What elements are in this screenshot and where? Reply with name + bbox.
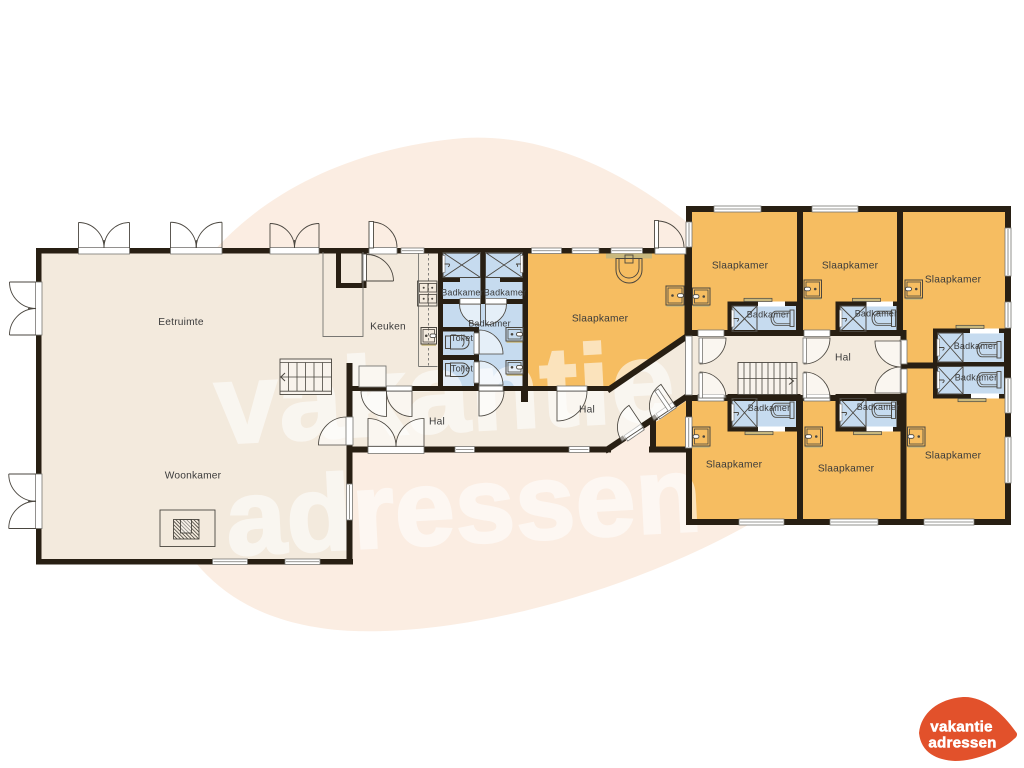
- svg-text:Badkamer: Badkamer: [747, 310, 790, 320]
- svg-text:Hal: Hal: [835, 353, 851, 364]
- svg-text:adressen: adressen: [223, 433, 705, 578]
- svg-text:Toilet: Toilet: [451, 364, 474, 374]
- svg-text:Slaapkamer: Slaapkamer: [925, 451, 982, 462]
- svg-text:Badkamer: Badkamer: [955, 373, 998, 383]
- svg-text:Slaapkamer: Slaapkamer: [706, 460, 763, 471]
- svg-text:Slaapkamer: Slaapkamer: [822, 261, 879, 272]
- svg-text:Toilet: Toilet: [451, 333, 474, 343]
- svg-text:Slaapkamer: Slaapkamer: [712, 261, 769, 272]
- svg-text:Keuken: Keuken: [370, 322, 406, 333]
- svg-text:vakantie: vakantie: [930, 719, 992, 736]
- svg-text:Badkamer: Badkamer: [855, 309, 898, 319]
- svg-text:Badkamer: Badkamer: [857, 402, 900, 412]
- svg-text:Slaapkamer: Slaapkamer: [572, 314, 629, 325]
- svg-text:Badkamer: Badkamer: [441, 288, 484, 298]
- svg-text:Eetruimte: Eetruimte: [158, 317, 204, 328]
- svg-text:Badkamer: Badkamer: [484, 288, 527, 298]
- svg-text:Badkamer: Badkamer: [954, 341, 997, 351]
- svg-text:Hal: Hal: [579, 405, 595, 416]
- svg-text:Hal: Hal: [429, 417, 445, 428]
- svg-text:Slaapkamer: Slaapkamer: [925, 275, 982, 286]
- svg-text:Woonkamer: Woonkamer: [165, 471, 222, 482]
- svg-text:Badkamer: Badkamer: [748, 403, 791, 413]
- svg-text:Badkamer: Badkamer: [468, 319, 511, 329]
- svg-text:adressen: adressen: [928, 735, 996, 752]
- svg-text:Slaapkamer: Slaapkamer: [818, 464, 875, 475]
